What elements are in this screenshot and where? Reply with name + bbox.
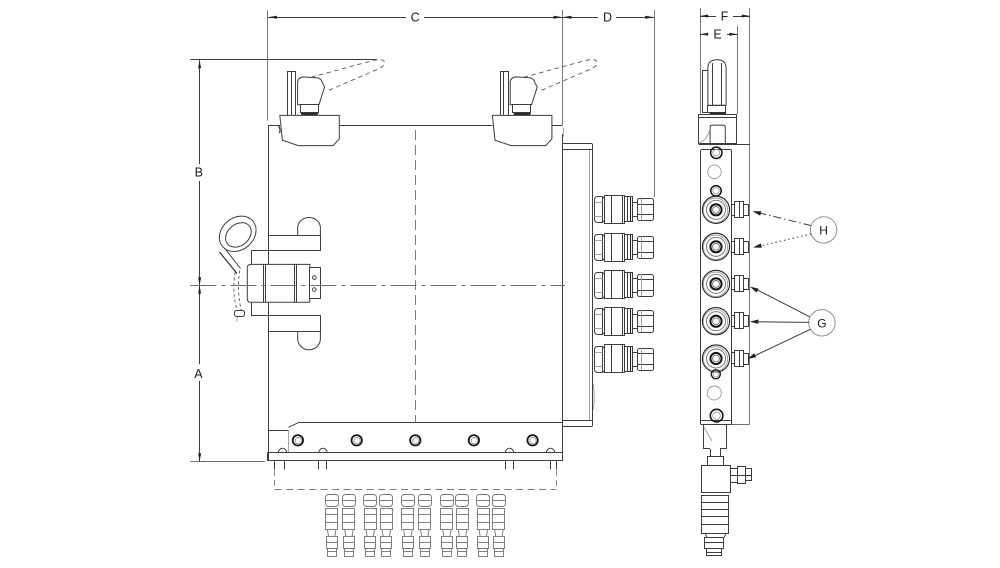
- svg-text:H: H: [819, 223, 828, 237]
- svg-text:G: G: [817, 316, 826, 330]
- svg-text:D: D: [603, 11, 612, 25]
- svg-text:A: A: [194, 367, 203, 381]
- svg-text:C: C: [411, 11, 420, 25]
- svg-text:F: F: [721, 9, 729, 23]
- svg-text:B: B: [195, 165, 203, 179]
- svg-text:E: E: [713, 28, 721, 42]
